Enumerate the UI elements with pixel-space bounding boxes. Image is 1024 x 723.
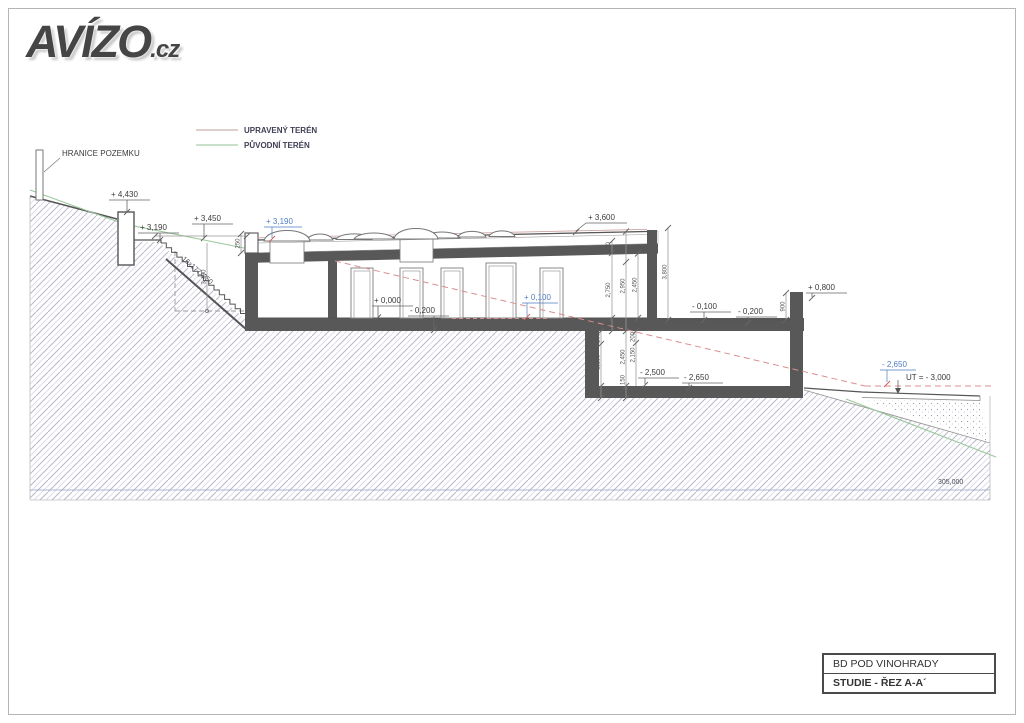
- drawing-page: 250 2,750 200 2,950 2,450 3,800 200 2,25…: [0, 0, 1024, 723]
- elevation-label-3190-street: + 3,190: [140, 223, 167, 232]
- dim-2950: 2,950: [621, 278, 627, 294]
- legend-label-upraveny: UPRAVENÝ TERÉN: [244, 126, 317, 135]
- title-block: BD POD VINOHRADY STUDIE - ŘEZ A-A´: [822, 653, 996, 694]
- legend: UPRAVENÝ TERÉN PŮVODNÍ TERÉN: [196, 126, 317, 150]
- avizo-logo-text: AVÍZO: [26, 16, 150, 67]
- door-4: [486, 263, 516, 318]
- wall-right-main: [647, 230, 657, 318]
- elevation-label-0000: + 0,000: [374, 296, 401, 305]
- datum-value: 305,000: [938, 479, 963, 486]
- ut-label: UT = - 3,000: [906, 373, 951, 382]
- elevation-label-m0100: - 0,100: [692, 302, 717, 311]
- elevation-label-0800: + 0,800: [808, 283, 835, 292]
- elevation-label-m0200-floor: - 0,200: [410, 306, 435, 315]
- avizo-logo: AVÍZO.cz: [26, 16, 179, 68]
- dim-2450: 2,450: [633, 277, 639, 293]
- dim-2750: 2,750: [606, 282, 612, 298]
- elevation-label-4430: + 4,430: [111, 190, 138, 199]
- terrain-surface-right: [804, 388, 980, 396]
- dim-900: 900: [781, 301, 787, 312]
- hranice-pozemku-label: HRANICE POZEMKU: [62, 149, 140, 158]
- dim-low-100: 100: [596, 387, 602, 398]
- dim-top-200: 200: [631, 331, 637, 342]
- dim-2250: 2,250: [596, 354, 602, 370]
- elevation-label-m2500: - 2,500: [640, 368, 665, 377]
- project-title: BD POD VINOHRADY: [824, 655, 994, 674]
- walkway-edge: [862, 396, 980, 401]
- avizo-logo-suffix: .cz: [150, 36, 179, 63]
- skylight-shaft-2: [400, 238, 433, 262]
- elevation-label-m2650: - 2,650: [684, 373, 709, 382]
- elevation-label-0100: + 0,100: [524, 293, 551, 302]
- elevation-label-m2650-terrain: - 2,650: [882, 360, 907, 369]
- dim-low-200: 200: [596, 332, 602, 343]
- dome-small-3: [489, 231, 515, 237]
- dim-200a: 200: [606, 319, 612, 330]
- elevation-label-3600: + 3,600: [588, 213, 615, 222]
- hranice-leader: [44, 158, 60, 172]
- legend-label-puvodni: PŮVODNÍ TERÉN: [244, 140, 310, 150]
- wall-right-lower: [790, 292, 803, 398]
- dome-small-1: [307, 234, 333, 240]
- elevation-label-3450: + 3,450: [194, 214, 221, 223]
- dome-big-2: [394, 229, 438, 240]
- section-drawing: 250 2,750 200 2,950 2,450 3,800 200 2,25…: [0, 0, 1024, 723]
- partition-wall: [328, 253, 337, 318]
- boundary-post: [36, 150, 43, 200]
- street-retaining-wall: [118, 212, 134, 265]
- drawing-title: STUDIE - ŘEZ A-A´: [824, 674, 994, 692]
- doors: [351, 263, 563, 318]
- dim-edge-250: 250: [236, 238, 242, 249]
- skylight-shaft-1: [270, 240, 304, 263]
- wall-left: [245, 252, 258, 331]
- dim-low-150: 150: [621, 374, 627, 385]
- floor-slab-lower: [585, 386, 803, 398]
- dim-2150: 2,150: [631, 347, 637, 363]
- elevation-label-m0200-terrace: - 0,200: [738, 307, 763, 316]
- dim-low-2450: 2,450: [621, 349, 627, 365]
- dim-roof-250: 250: [606, 241, 612, 252]
- dome-small-2: [458, 231, 486, 237]
- elevation-label-3190-roof: + 3,190: [266, 217, 293, 226]
- dim-3800: 3,800: [663, 264, 669, 280]
